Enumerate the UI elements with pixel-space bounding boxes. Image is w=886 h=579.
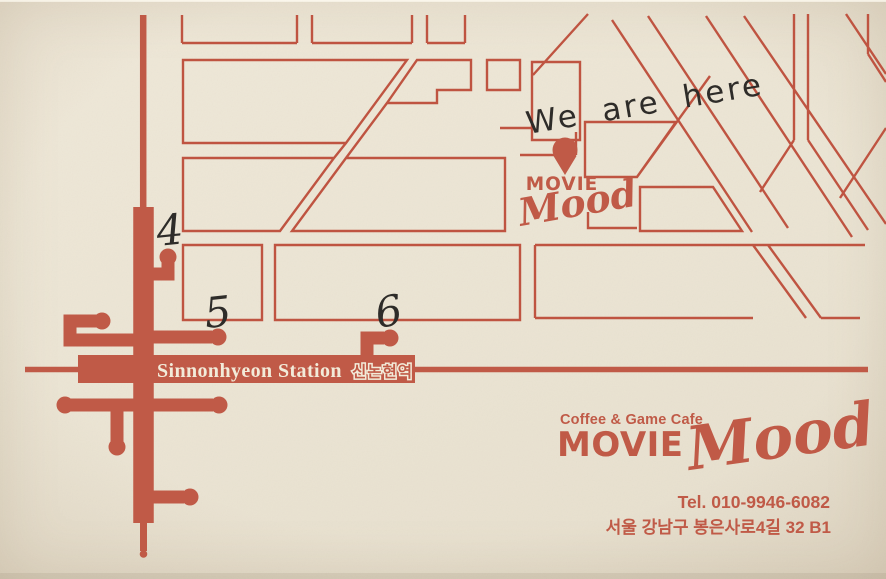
address: 서울 강남구 봉은사로4길 32 B1 [606, 518, 831, 537]
subway-line [140, 15, 148, 558]
map-card: Sinnonhyeon Station 신논현역 4 5 6 We are he… [0, 0, 886, 579]
paper-top-edge [0, 0, 886, 2]
exit-5-label: 5 [202, 286, 234, 338]
phone-number: Tel. 010-9946-6082 [678, 492, 831, 512]
paper-bottom-edge [0, 573, 886, 579]
exit-4-label: 4 [153, 204, 186, 256]
station-name-ko: 신논현역 [352, 362, 413, 381]
logo-large-movie: MOVIE [557, 425, 684, 465]
station-name-en: Sinnonhyeon Station [157, 360, 342, 382]
